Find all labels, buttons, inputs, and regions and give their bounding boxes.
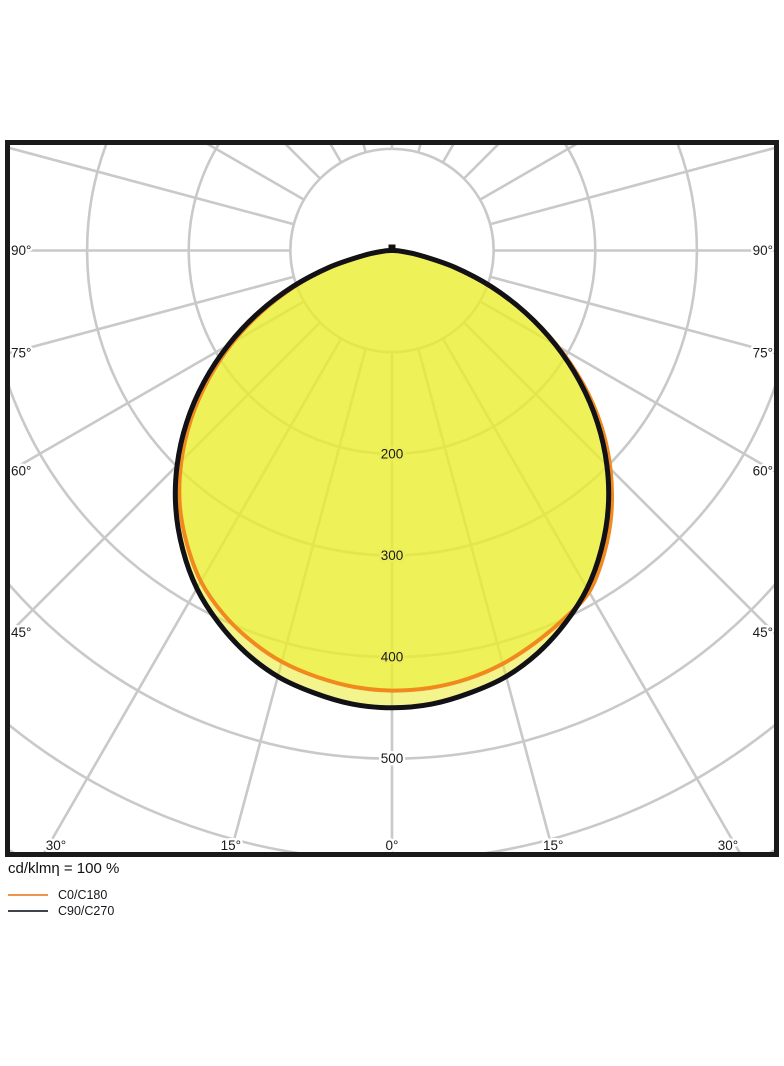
angle-label-left-75: 75° (11, 345, 31, 360)
legend-line-c0-c180-icon (8, 894, 48, 896)
ring-label-200: 200 (381, 446, 404, 461)
grid-spoke (138, 0, 365, 152)
photometric-diagram-page: 20030040050090°75°60°45°90°75°60°45°30°1… (0, 0, 784, 1066)
angle-label-right-60: 60° (753, 464, 773, 479)
legend-item-c90-c270: C90/C270 (8, 903, 119, 919)
ring-label-400: 400 (381, 650, 404, 665)
angle-label-bottom-c0: 0° (386, 838, 399, 853)
grid-spoke (418, 0, 645, 152)
angle-label-left-90: 90° (11, 243, 31, 258)
ring-label-500: 500 (381, 751, 404, 766)
unit-label: cd/klmη = 100 % (8, 860, 119, 878)
angle-label-left-45: 45° (11, 625, 31, 640)
legend: cd/klmη = 100 % C0/C180 C90/C270 (8, 860, 119, 919)
angle-label-right-45: 45° (753, 625, 773, 640)
polar-center-marker (389, 245, 396, 252)
angle-label-bottom-r30: 30° (718, 838, 738, 853)
angle-label-right-90: 90° (753, 243, 773, 258)
angle-label-bottom-r15: 15° (543, 838, 563, 853)
angle-label-right-75: 75° (753, 345, 773, 360)
grid-spoke (0, 0, 341, 162)
ring-label-300: 300 (381, 548, 404, 563)
grid-spoke (443, 0, 784, 162)
legend-line-c90-c270-icon (8, 910, 48, 912)
angle-label-left-60: 60° (11, 464, 31, 479)
legend-label-c90-c270: C90/C270 (58, 904, 114, 918)
angle-label-bottom-l15: 15° (221, 838, 241, 853)
legend-item-c0-c180: C0/C180 (8, 887, 119, 903)
legend-label-c0-c180: C0/C180 (58, 888, 107, 902)
legend-items: C0/C180 C90/C270 (8, 887, 119, 919)
angle-label-bottom-l30: 30° (46, 838, 66, 853)
